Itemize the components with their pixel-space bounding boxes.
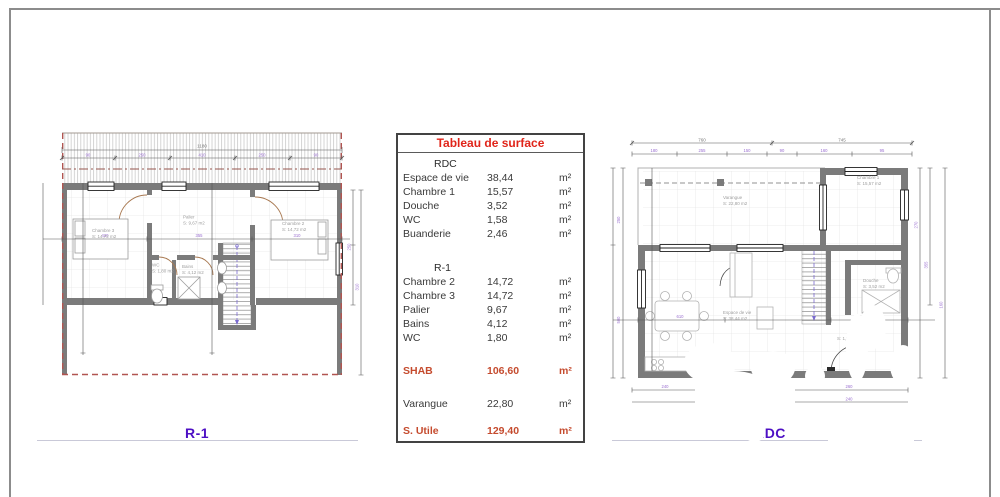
row-value: 14,72 xyxy=(487,289,559,303)
room-area-espace: S: 38,44 m2 xyxy=(723,316,748,321)
row-value: 38,44 xyxy=(487,171,559,185)
section-header-r1: R-1 xyxy=(398,261,583,275)
room-label-wc: WC xyxy=(152,263,160,268)
rdc-dim: 255 xyxy=(699,148,707,153)
room-label-chambre1: Chambre 1 xyxy=(857,175,880,180)
rdc-dim: 500 xyxy=(616,316,621,324)
spacer xyxy=(398,345,583,364)
r1-dim: 90 xyxy=(314,153,319,158)
row-label: Chambre 2 xyxy=(398,275,487,289)
surface-table: Tableau de surface RDC Espace de vie 38,… xyxy=(396,133,585,443)
row-label: Bains xyxy=(398,317,487,331)
section-label: RDC xyxy=(398,157,457,171)
row-value: 106,60 xyxy=(487,364,559,378)
rdc-dim: 610 xyxy=(677,314,685,319)
row-unit: m² xyxy=(559,289,583,303)
row-label: WC xyxy=(398,331,487,345)
row-label: S. Utile xyxy=(398,424,487,438)
rdc-dim: 260 xyxy=(846,384,854,389)
table-row: WC 1,58 m² xyxy=(398,213,583,227)
surface-utile-row: S. Utile 129,40 m² xyxy=(398,424,583,438)
watermark-blob-over-rule xyxy=(828,432,914,446)
room-label-palier: Palier xyxy=(183,215,195,220)
row-value: 129,40 xyxy=(487,424,559,438)
row-unit: m² xyxy=(559,275,583,289)
row-value: 22,80 xyxy=(487,397,559,411)
r1-plan-title: R-1 xyxy=(37,425,357,441)
surface-table-rows: RDC Espace de vie 38,44 m² Chambre 1 15,… xyxy=(398,153,583,438)
r1-dim: 355 xyxy=(196,233,204,238)
room-area-palier: S: 9,67 m2 xyxy=(183,221,205,226)
room-label-bains: Bains xyxy=(182,264,194,269)
row-unit: m² xyxy=(559,331,583,345)
room-label-chambre2: Chambre 2 xyxy=(282,221,305,226)
rdc-dim: 240 xyxy=(662,384,670,389)
room-label-varangue: Varangue xyxy=(723,195,743,200)
rdc-dim: 160 xyxy=(939,301,944,309)
room-area-chambre3: S: 14,72 m2 xyxy=(92,234,117,239)
table-row: WC 1,80 m² xyxy=(398,331,583,345)
row-unit: m² xyxy=(559,199,583,213)
table-row: Buanderie 2,46 m² xyxy=(398,227,583,241)
room-area-bains: S: 4,12 m2 xyxy=(182,270,204,275)
row-unit: m² xyxy=(559,303,583,317)
r1-dim: 310 xyxy=(355,283,360,291)
rdc-floor-plan: 760 745 180 255 150 90 160 95 610 140 25… xyxy=(605,135,960,405)
rdc-dim: 95 xyxy=(880,148,885,153)
table-row: Chambre 3 14,72 m² xyxy=(398,289,583,303)
section-header-rdc: RDC xyxy=(398,157,583,171)
row-label: Chambre 3 xyxy=(398,289,487,303)
table-row: Chambre 1 15,57 m² xyxy=(398,185,583,199)
rdc-dim: 180 xyxy=(651,148,659,153)
row-label: Espace de vie xyxy=(398,171,487,185)
r1-dim: 250 xyxy=(347,243,352,251)
r1-dim: 310 xyxy=(294,233,302,238)
sheet-frame-top xyxy=(9,8,1000,10)
row-label: Buanderie xyxy=(398,227,487,241)
row-value: 9,67 xyxy=(487,303,559,317)
row-label: Palier xyxy=(398,303,487,317)
room-label-espace: Espace de vie xyxy=(723,310,752,315)
row-label: Varangue xyxy=(398,397,487,411)
rdc-dim: 355 xyxy=(924,261,929,269)
room-area-varangue: S: 22,80 m2 xyxy=(723,201,748,206)
drawing-sheet: 1180 90 250 410 250 90 420 355 310 250 3… xyxy=(0,0,1000,497)
spacer xyxy=(398,411,583,424)
row-value: 15,57 xyxy=(487,185,559,199)
sheet-frame-left xyxy=(9,8,11,497)
rdc-dim: 150 xyxy=(744,148,752,153)
row-unit: m² xyxy=(559,397,583,411)
row-unit: m² xyxy=(559,317,583,331)
room-label-douche: Douche xyxy=(863,278,879,283)
row-unit: m² xyxy=(559,364,583,378)
table-row: Chambre 2 14,72 m² xyxy=(398,275,583,289)
rdc-dim: 270 xyxy=(914,221,919,229)
table-row: Espace de vie 38,44 m² xyxy=(398,171,583,185)
rdc-dim: 160 xyxy=(821,148,829,153)
room-area-wc: S: 1,80 m2 xyxy=(152,269,174,274)
row-label: Douche xyxy=(398,199,487,213)
r1-dim: 250 xyxy=(259,153,267,158)
r1-floor-plan: 1180 90 250 410 250 90 420 355 310 250 3… xyxy=(35,125,370,395)
row-value: 1,58 xyxy=(487,213,559,227)
row-unit: m² xyxy=(559,185,583,199)
rdc-dim: 240 xyxy=(846,397,854,402)
row-value: 3,52 xyxy=(487,199,559,213)
r1-dim: 410 xyxy=(199,153,207,158)
row-value: 4,12 xyxy=(487,317,559,331)
row-unit: m² xyxy=(559,171,583,185)
spacer xyxy=(398,378,583,397)
row-unit: m² xyxy=(559,227,583,241)
room-area-douche: S: 3,52 m2 xyxy=(863,284,885,289)
r1-dim: 90 xyxy=(86,153,91,158)
rdc-dim-total: 745 xyxy=(838,138,846,143)
table-row: Douche 3,52 m² xyxy=(398,199,583,213)
surface-table-title: Tableau de surface xyxy=(398,135,583,153)
sheet-frame-right xyxy=(989,8,991,497)
row-value: 14,72 xyxy=(487,275,559,289)
spacer xyxy=(398,242,583,261)
room-label-chambre3: Chambre 3 xyxy=(92,228,115,233)
watermark-blob-over-title xyxy=(744,423,765,442)
rdc-dim: 90 xyxy=(780,148,785,153)
rdc-dim: 250 xyxy=(616,216,621,224)
table-row: Palier 9,67 m² xyxy=(398,303,583,317)
row-label: Chambre 1 xyxy=(398,185,487,199)
room-area-chambre2: S: 14,72 m2 xyxy=(282,227,307,232)
r1-dim: 250 xyxy=(139,153,147,158)
row-label: SHAB xyxy=(398,364,487,378)
section-label: R-1 xyxy=(398,261,451,275)
row-value: 1,80 xyxy=(487,331,559,345)
table-row: Bains 4,12 m² xyxy=(398,317,583,331)
rdc-dim-total: 760 xyxy=(698,138,706,143)
row-unit: m² xyxy=(559,213,583,227)
row-value: 2,46 xyxy=(487,227,559,241)
row-unit: m² xyxy=(559,424,583,438)
room-area-chambre1: S: 15,57 m2 xyxy=(857,181,882,186)
row-label: WC xyxy=(398,213,487,227)
varangue-row: Varangue 22,80 m² xyxy=(398,397,583,411)
shab-total-row: SHAB 106,60 m² xyxy=(398,364,583,378)
r1-dim-total: 1180 xyxy=(197,144,207,149)
